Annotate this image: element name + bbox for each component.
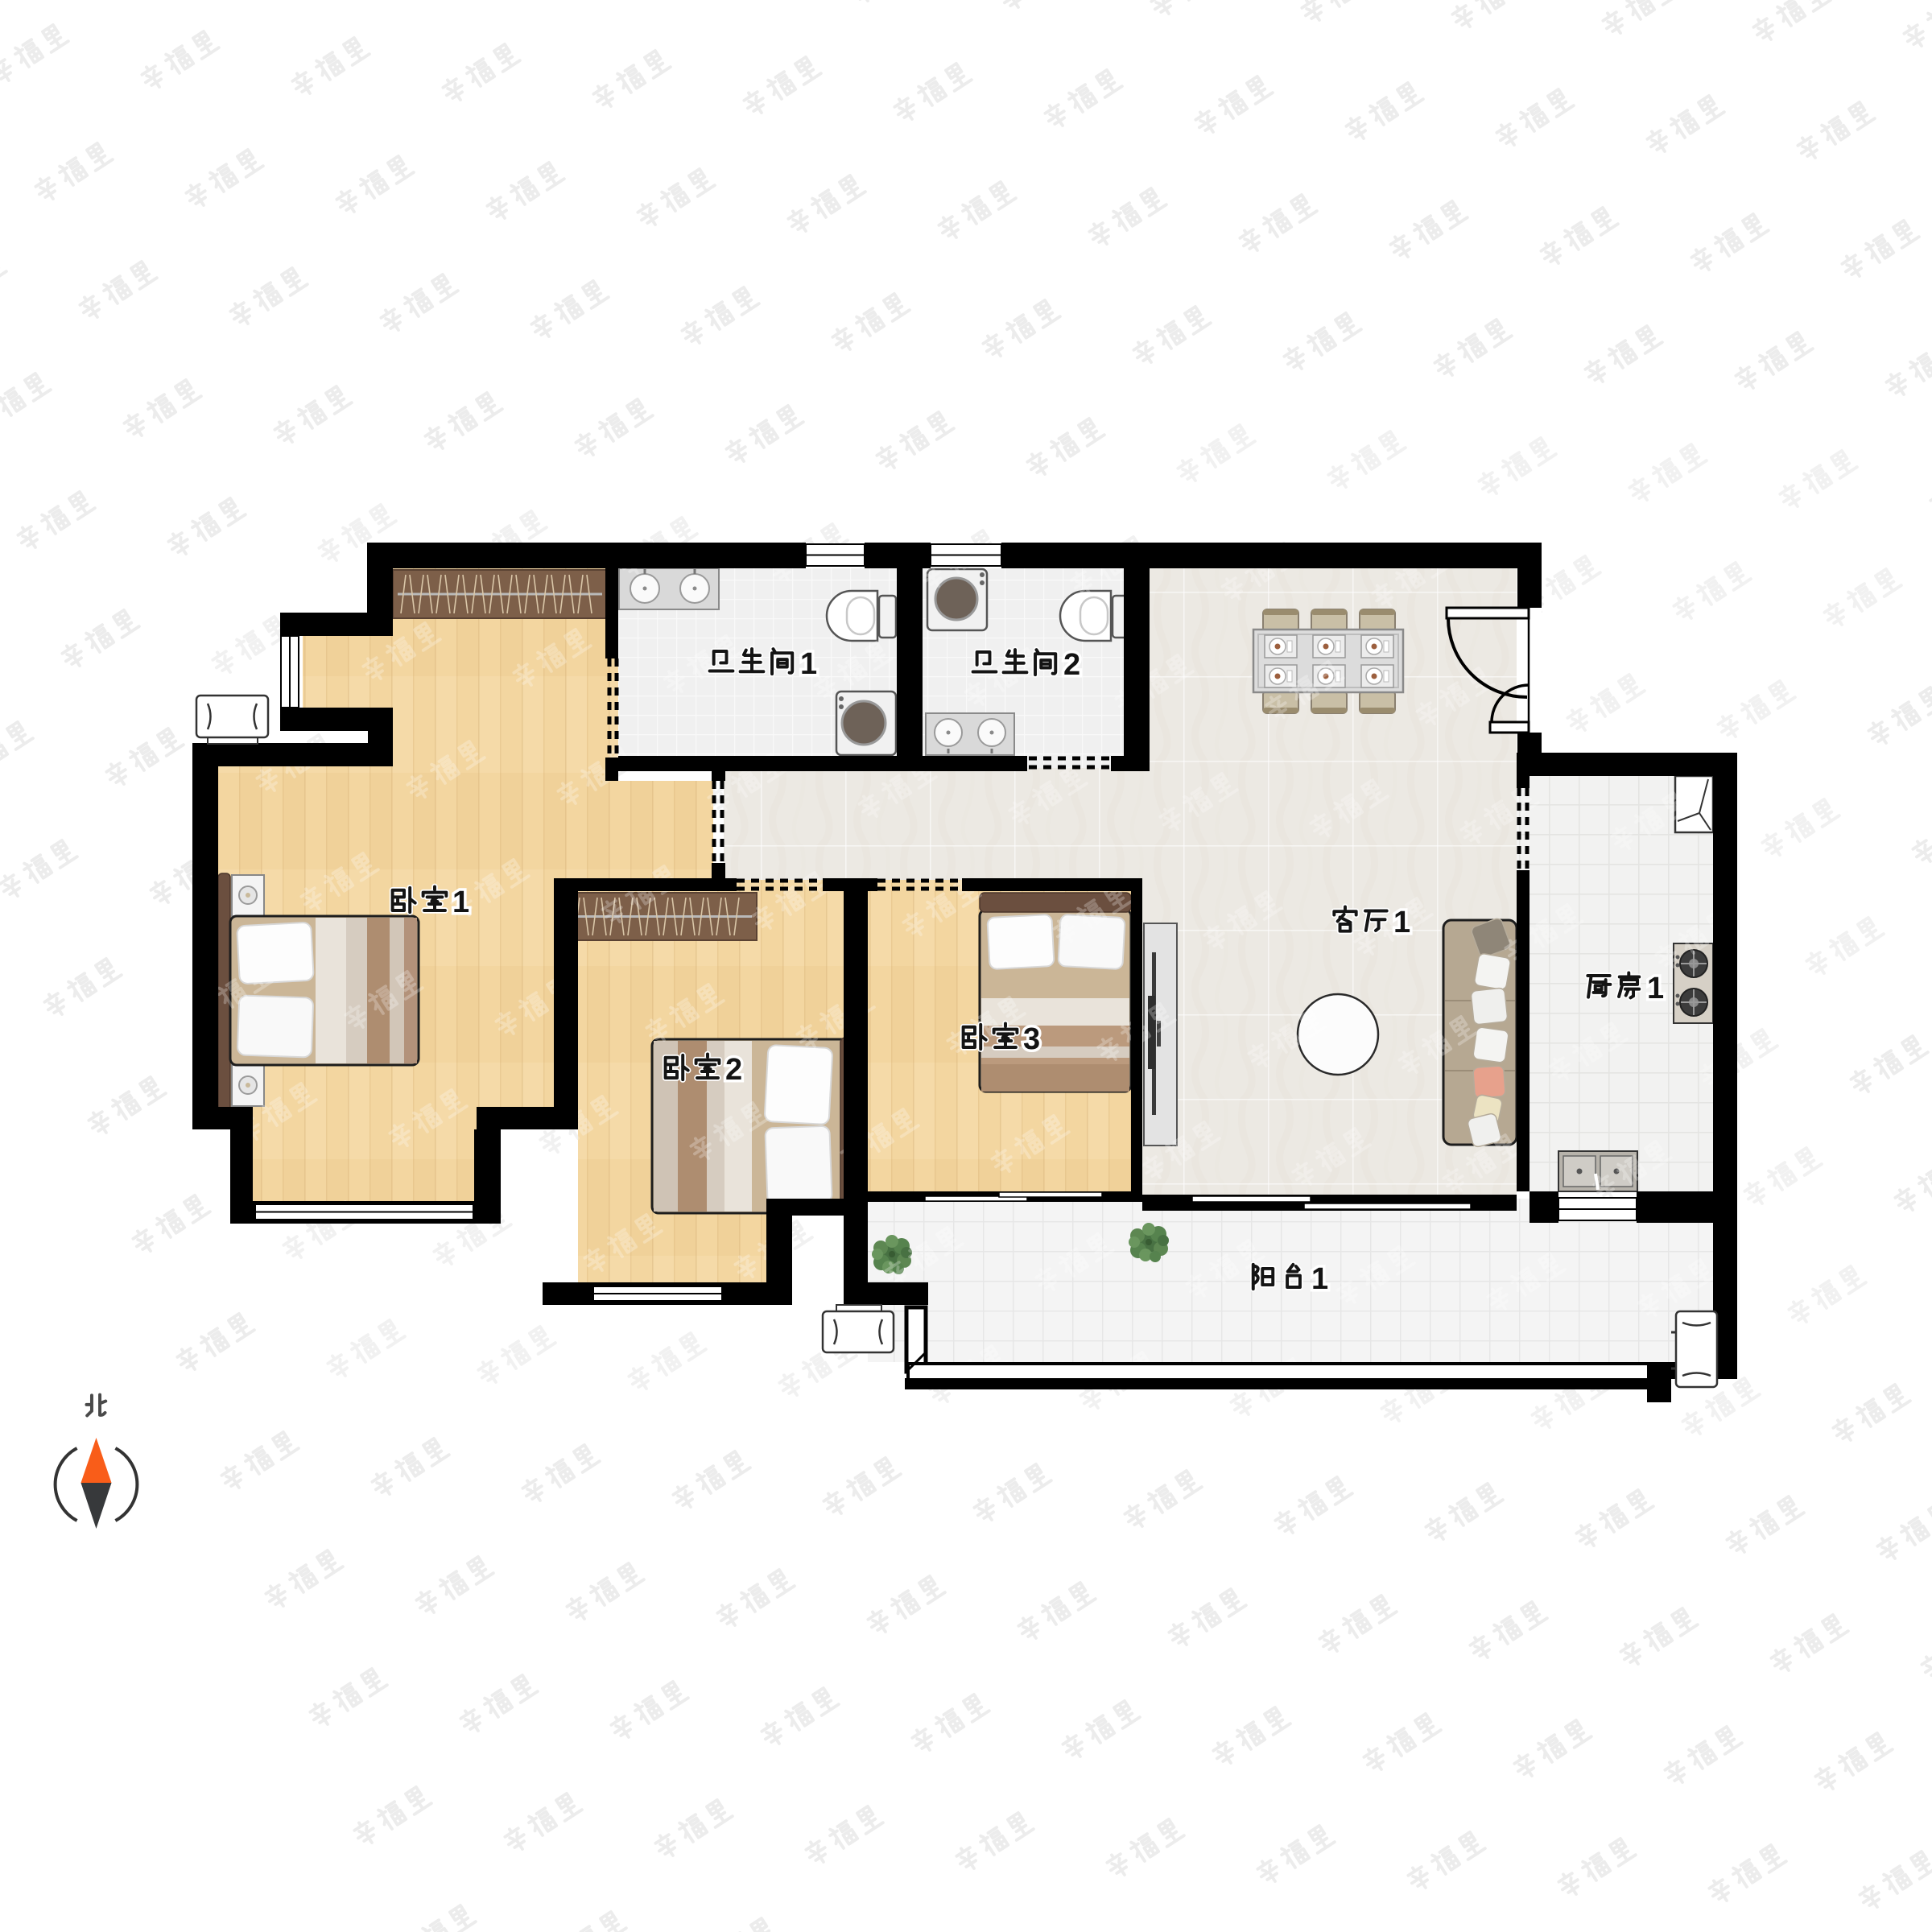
svg-text:1: 1 <box>1393 906 1410 939</box>
svg-text:1: 1 <box>1647 972 1664 1005</box>
svg-text:1: 1 <box>800 647 817 681</box>
svg-text:2: 2 <box>725 1053 742 1087</box>
svg-text:1: 1 <box>452 885 469 919</box>
svg-text:2: 2 <box>1063 648 1080 682</box>
svg-text:1: 1 <box>1311 1262 1328 1296</box>
svg-text:3: 3 <box>1023 1022 1040 1056</box>
